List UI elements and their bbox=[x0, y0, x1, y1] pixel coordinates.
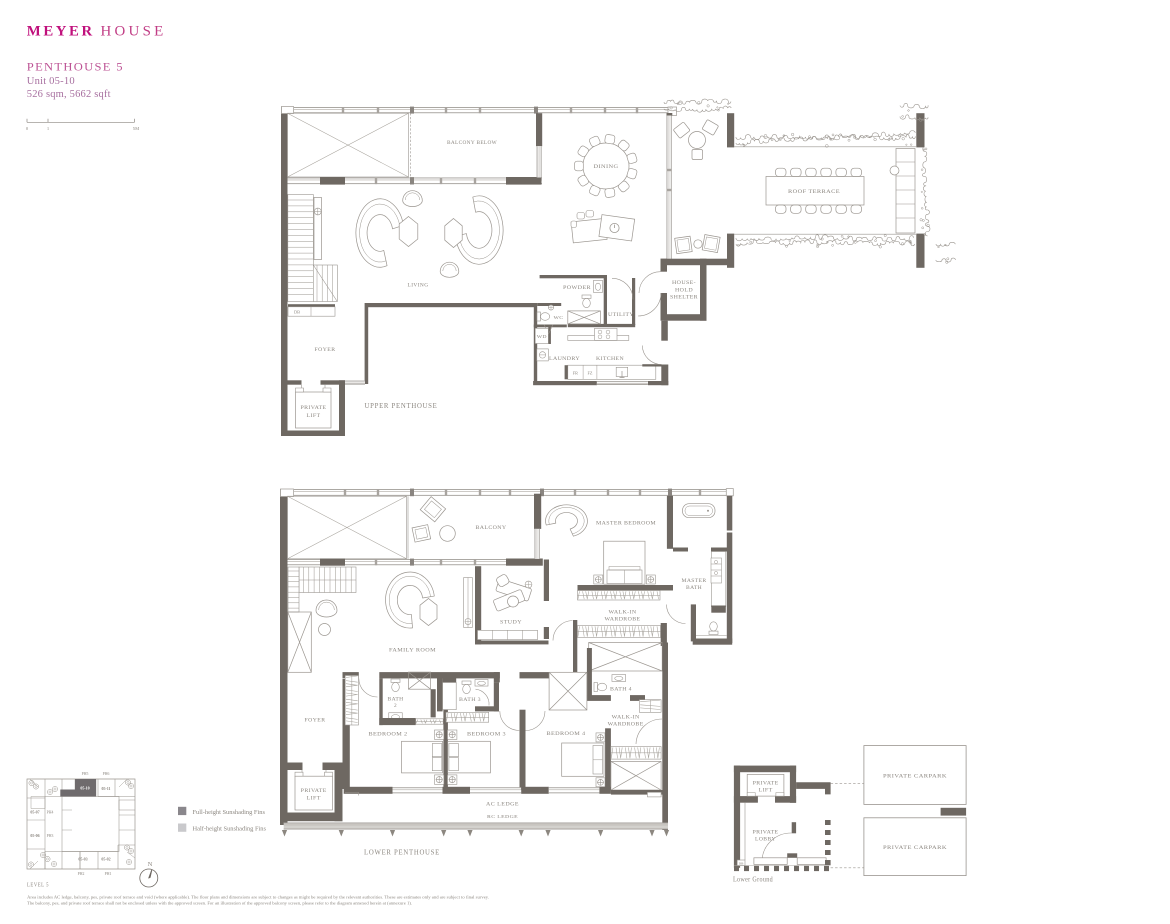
svg-text:BALCONY BELOW: BALCONY BELOW bbox=[447, 141, 497, 146]
svg-text:UPPER PENTHOUSE: UPPER PENTHOUSE bbox=[365, 401, 438, 410]
svg-text:526 sqm, 5662 sqft: 526 sqm, 5662 sqft bbox=[27, 89, 111, 100]
svg-text:FOYER: FOYER bbox=[305, 719, 326, 724]
svg-text:HOUSE-: HOUSE- bbox=[672, 281, 696, 286]
svg-text:PH4: PH4 bbox=[47, 811, 54, 815]
svg-text:PH1: PH1 bbox=[105, 872, 112, 876]
svg-text:LIFT: LIFT bbox=[307, 414, 321, 419]
svg-text:PRIVATE: PRIVATE bbox=[753, 831, 779, 836]
svg-text:KITCHEN: KITCHEN bbox=[596, 357, 624, 362]
svg-text:LOBBY: LOBBY bbox=[755, 838, 776, 843]
svg-text:BEDROOM 3: BEDROOM 3 bbox=[467, 732, 506, 737]
svg-text:WD: WD bbox=[537, 334, 548, 339]
svg-text:STUDY: STUDY bbox=[500, 621, 522, 626]
svg-text:BATH: BATH bbox=[388, 698, 404, 703]
svg-text:LIVING: LIVING bbox=[408, 283, 429, 288]
svg-text:WALK-IN: WALK-IN bbox=[609, 611, 637, 616]
svg-text:Unit 05-10: Unit 05-10 bbox=[27, 76, 75, 87]
svg-text:PH6: PH6 bbox=[103, 772, 110, 776]
svg-text:BATH 4: BATH 4 bbox=[610, 687, 632, 692]
svg-text:MASTER: MASTER bbox=[682, 579, 708, 584]
svg-text:FAMILY ROOM: FAMILY ROOM bbox=[389, 648, 436, 653]
svg-text:BEDROOM 4: BEDROOM 4 bbox=[547, 732, 586, 737]
svg-text:PH2: PH2 bbox=[78, 872, 85, 876]
svg-text:N: N bbox=[148, 861, 153, 868]
svg-text:LIFT: LIFT bbox=[307, 797, 321, 802]
svg-text:Lower Ground: Lower Ground bbox=[733, 875, 773, 884]
svg-text:POWDER: POWDER bbox=[563, 286, 592, 291]
svg-text:PRIVATE CARPARK: PRIVATE CARPARK bbox=[883, 775, 947, 780]
svg-text:BATH 3: BATH 3 bbox=[459, 698, 481, 703]
svg-text:LAUNDRY: LAUNDRY bbox=[549, 357, 580, 362]
svg-text:PRIVATE: PRIVATE bbox=[301, 789, 327, 794]
svg-text:LIFT: LIFT bbox=[759, 789, 773, 794]
svg-text:2: 2 bbox=[394, 704, 397, 709]
svg-text:BATH: BATH bbox=[686, 586, 702, 591]
svg-text:HOLD: HOLD bbox=[675, 288, 693, 293]
svg-text:WARDROBE: WARDROBE bbox=[605, 618, 641, 623]
svg-text:MEYER: MEYER bbox=[27, 24, 95, 40]
svg-text:5M: 5M bbox=[133, 126, 139, 131]
svg-text:RC LEDGE: RC LEDGE bbox=[487, 814, 518, 819]
svg-text:PRIVATE CARPARK: PRIVATE CARPARK bbox=[883, 846, 947, 851]
svg-text:ROOF TERRACE: ROOF TERRACE bbox=[788, 190, 840, 195]
svg-text:WC: WC bbox=[554, 315, 564, 320]
svg-text:DB: DB bbox=[739, 861, 744, 865]
svg-text:PRIVATE: PRIVATE bbox=[753, 782, 779, 787]
svg-text:PRIVATE: PRIVATE bbox=[301, 406, 327, 411]
svg-text:Half-height Sunshading Fins: Half-height Sunshading Fins bbox=[193, 826, 267, 833]
svg-text:UTILITY: UTILITY bbox=[608, 313, 634, 318]
svg-text:05-10: 05-10 bbox=[80, 786, 89, 791]
svg-text:PENTHOUSE 5: PENTHOUSE 5 bbox=[27, 61, 124, 74]
svg-text:05-03: 05-03 bbox=[78, 857, 87, 862]
svg-text:WARDROBE: WARDROBE bbox=[608, 722, 644, 727]
svg-text:05-11: 05-11 bbox=[101, 786, 110, 791]
svg-text:05-06: 05-06 bbox=[30, 833, 39, 838]
svg-text:BALCONY: BALCONY bbox=[476, 526, 507, 531]
svg-text:MASTER BEDROOM: MASTER BEDROOM bbox=[596, 522, 656, 527]
svg-text:LOWER PENTHOUSE: LOWER PENTHOUSE bbox=[364, 848, 440, 857]
svg-text:DINING: DINING bbox=[594, 165, 619, 170]
svg-text:BEDROOM 2: BEDROOM 2 bbox=[369, 732, 408, 737]
svg-text:DB: DB bbox=[294, 309, 300, 314]
svg-text:WALK-IN: WALK-IN bbox=[612, 715, 640, 720]
svg-text:FZ: FZ bbox=[588, 370, 593, 375]
svg-text:PH5: PH5 bbox=[82, 772, 89, 776]
svg-text:FOYER: FOYER bbox=[315, 348, 336, 353]
svg-text:FR: FR bbox=[573, 370, 578, 375]
svg-text:Full-height Sunshading Fins: Full-height Sunshading Fins bbox=[193, 809, 266, 816]
svg-text:SHELTER: SHELTER bbox=[670, 296, 699, 301]
svg-text:LEVEL 5: LEVEL 5 bbox=[27, 882, 49, 889]
svg-text:AC LEDGE: AC LEDGE bbox=[486, 803, 519, 808]
svg-text:05-02: 05-02 bbox=[101, 857, 110, 862]
svg-text:HOUSE: HOUSE bbox=[101, 24, 167, 40]
svg-text:05-07: 05-07 bbox=[30, 810, 39, 815]
svg-text:PH3: PH3 bbox=[47, 834, 54, 838]
